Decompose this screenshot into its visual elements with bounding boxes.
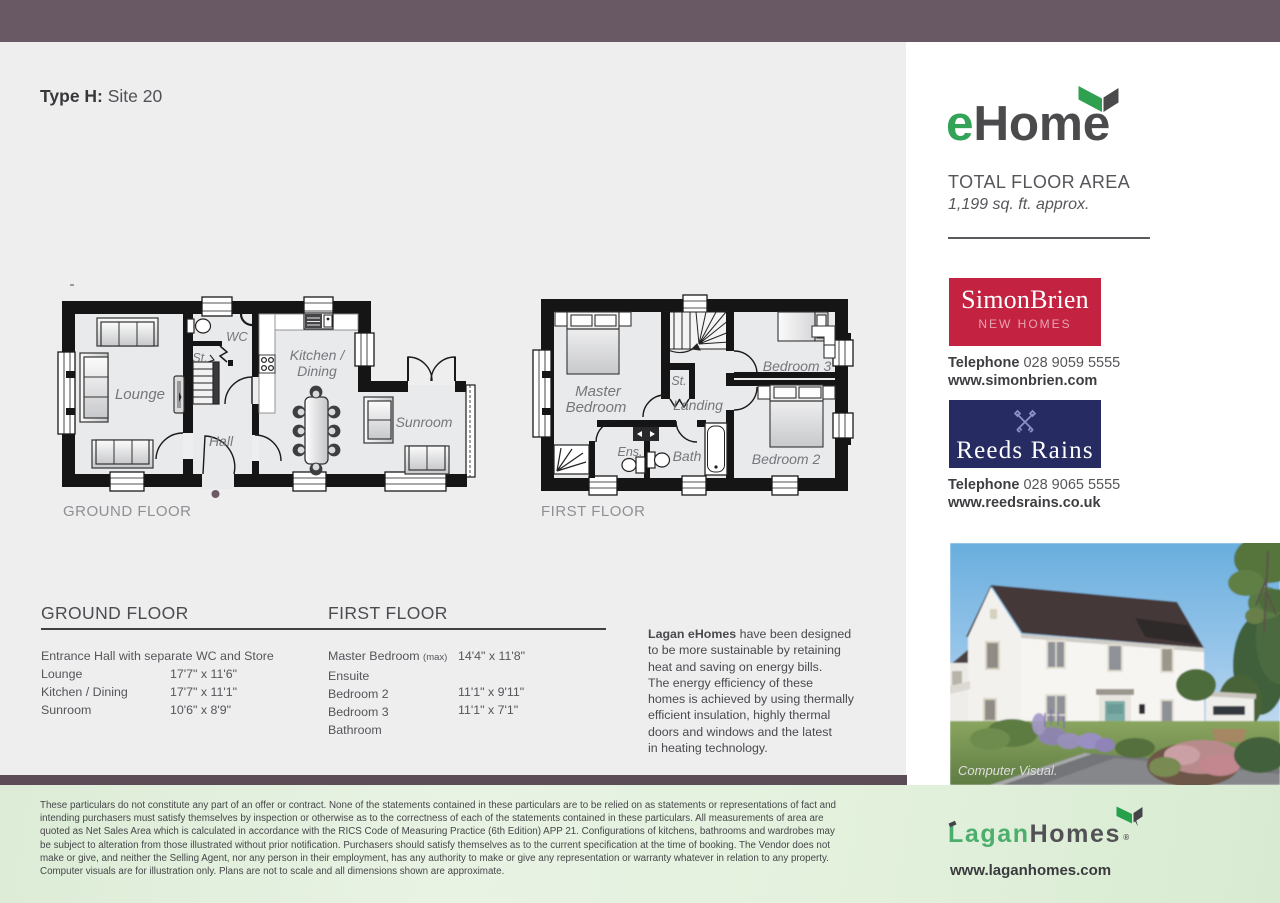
svg-text:Ens.: Ens. <box>617 445 642 459</box>
svg-text:Dining: Dining <box>297 363 337 379</box>
svg-text:Sunroom: Sunroom <box>396 414 453 430</box>
svg-text:Lounge: Lounge <box>115 386 165 403</box>
svg-text:Bedroom: Bedroom <box>566 399 627 416</box>
svg-text:Bedroom 2: Bedroom 2 <box>752 451 821 467</box>
svg-text:St.: St. <box>192 351 207 365</box>
svg-text:Master: Master <box>575 383 622 400</box>
svg-text:St.: St. <box>671 374 686 388</box>
svg-text:WC: WC <box>226 329 248 344</box>
svg-text:Bath: Bath <box>673 448 702 464</box>
svg-text:Computer Visual.: Computer Visual. <box>958 763 1057 778</box>
svg-text:Landing: Landing <box>673 397 723 413</box>
svg-text:Bedroom 3: Bedroom 3 <box>763 358 832 374</box>
svg-text:Hall: Hall <box>209 433 234 449</box>
svg-text:Kitchen /: Kitchen / <box>290 347 347 363</box>
